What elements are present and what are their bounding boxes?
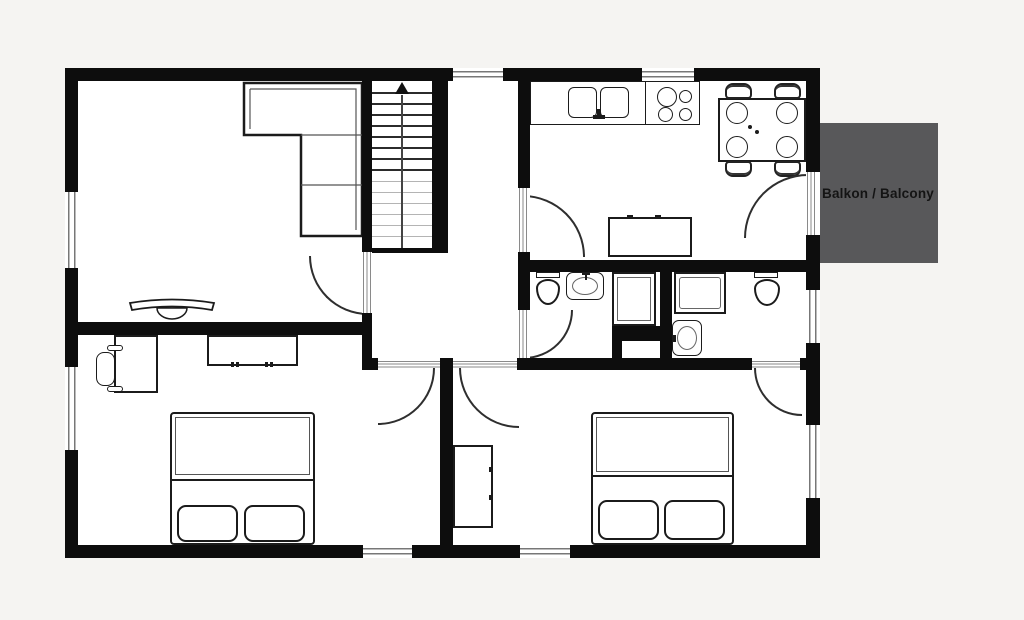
wall-segment: [806, 343, 820, 425]
faucet-icon: [597, 109, 601, 116]
floor-plan-canvas: Balkon / Balcony: [0, 0, 1024, 620]
plate-icon: [726, 136, 748, 158]
dining-chair: [774, 83, 801, 99]
window: [65, 192, 78, 268]
wall-segment: [65, 545, 363, 558]
burner-icon: [657, 87, 677, 107]
bed-fold-line: [593, 475, 732, 477]
burner-icon: [679, 108, 692, 121]
door-frame: [518, 188, 530, 252]
balcony-label: Balkon / Balcony: [822, 186, 934, 201]
window: [520, 545, 570, 558]
kitchen-sideboard: [608, 217, 692, 257]
handle-icon: [489, 495, 493, 500]
wall-segment: [432, 81, 448, 251]
wall-segment: [412, 545, 520, 558]
wall-segment: [503, 68, 642, 81]
corner-sofa: [243, 82, 364, 238]
faucet-icon: [585, 275, 587, 280]
door-frame: [378, 360, 440, 368]
bed-fold-line: [172, 479, 313, 481]
handle-icon: [265, 362, 268, 367]
plate-icon: [776, 136, 798, 158]
wall-segment: [440, 358, 453, 545]
handle-icon: [627, 215, 633, 218]
chair-armrest: [107, 345, 123, 351]
wall-segment: [65, 68, 453, 81]
bed-duvet: [175, 417, 310, 475]
wall-segment: [806, 235, 820, 290]
toilet-tank: [754, 272, 778, 278]
balcony-area: Balkon / Balcony: [818, 123, 938, 263]
wall-segment: [362, 358, 378, 370]
table-dot-icon: [755, 130, 759, 134]
handle-icon: [270, 362, 273, 367]
toilet-tank: [536, 272, 560, 278]
plate-icon: [776, 102, 798, 124]
pillow: [664, 500, 725, 540]
plate-icon: [726, 102, 748, 124]
sink-basin: [568, 87, 597, 118]
dresser: [207, 335, 298, 366]
door-frame: [752, 360, 800, 368]
wall-segment: [800, 358, 818, 370]
window: [642, 68, 694, 81]
door-frame: [518, 310, 530, 358]
wall-segment: [806, 498, 820, 558]
bed-duvet: [596, 417, 729, 472]
duct-shaft: [622, 341, 660, 358]
pillow: [244, 505, 305, 542]
burner-icon: [679, 90, 692, 103]
wall-segment: [518, 81, 530, 188]
desk-chair: [96, 352, 115, 386]
handle-icon: [489, 467, 493, 472]
faucet-icon: [673, 335, 676, 342]
chair-armrest: [107, 386, 123, 392]
wall-segment: [570, 545, 820, 558]
handle-icon: [655, 215, 661, 218]
window: [453, 68, 503, 81]
dining-chair: [725, 161, 752, 177]
washbasin-bowl: [677, 326, 697, 350]
shower-tub-inner: [679, 277, 721, 309]
wall-segment: [518, 260, 806, 272]
wall-segment: [65, 68, 78, 192]
window: [806, 290, 820, 343]
dining-chair: [725, 83, 752, 99]
stair-direction-line: [401, 95, 403, 248]
table-dot-icon: [748, 125, 752, 129]
up-arrow-icon: [395, 82, 409, 94]
pillow: [177, 505, 238, 542]
door-frame: [453, 360, 517, 368]
wall-segment: [694, 68, 820, 81]
wall-segment: [372, 248, 448, 253]
window: [806, 425, 820, 498]
window: [65, 367, 78, 450]
burner-icon: [658, 107, 673, 122]
door-frame: [806, 172, 820, 235]
window: [363, 545, 412, 558]
wall-segment: [806, 68, 820, 172]
wall-segment: [362, 81, 372, 252]
wall-segment: [65, 268, 78, 367]
sink-basin: [600, 87, 629, 118]
wall-segment: [65, 450, 78, 558]
shower-tray: [617, 277, 651, 321]
desk: [114, 335, 158, 393]
wardrobe: [453, 445, 493, 528]
wall-segment: [65, 322, 372, 335]
pillow: [598, 500, 659, 540]
tv-console: [127, 295, 217, 321]
handle-icon: [231, 362, 234, 367]
handle-icon: [236, 362, 239, 367]
wall-segment: [517, 358, 752, 370]
door-frame: [362, 252, 372, 313]
